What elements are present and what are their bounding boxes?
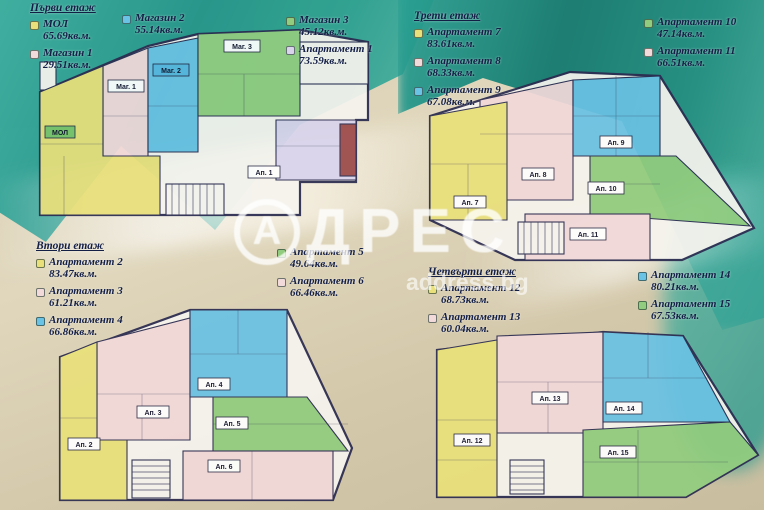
legend-item: Апартамент 13 60.04кв.м.	[428, 312, 520, 335]
legend-item: Апартамент 10 47.14кв.м.	[644, 17, 736, 40]
unit-label: Апартамент 11	[657, 46, 736, 58]
unit-chip: Ап. 15	[600, 446, 636, 458]
unit-label: Апартамент 14	[651, 270, 730, 282]
unit-area: 65.69кв.м.	[43, 31, 91, 43]
unit-chip: Ап. 2	[68, 438, 100, 450]
unit-chip: Маг. 3	[224, 40, 260, 52]
unit-label: Апартамент 5	[290, 247, 364, 259]
unit-area: 61.21кв.м.	[49, 298, 123, 310]
svg-text:Ап. 6: Ап. 6	[215, 464, 232, 471]
unit-color-bullet	[286, 17, 295, 26]
brochure-page: МОЛ Маг. 1 Маг. 2 Маг. 3 Ап. 1 Ап. 7 Ап.…	[0, 0, 764, 510]
unit-area: 83.61кв.м.	[427, 39, 501, 51]
legend-item: МОЛ 65.69кв.м.	[30, 19, 96, 42]
unit-shape-mag-1	[103, 48, 148, 156]
svg-text:Маг. 2: Маг. 2	[161, 68, 181, 75]
unit-area: 68.73кв.м.	[441, 295, 520, 307]
floor-title: Първи етаж	[30, 2, 96, 14]
stairwell	[166, 184, 224, 215]
unit-chip: Маг. 1	[108, 80, 144, 92]
svg-text:Ап. 9: Ап. 9	[607, 140, 624, 147]
svg-text:Ап. 8: Ап. 8	[529, 172, 546, 179]
unit-area: 67.08кв.м.	[427, 97, 501, 109]
unit-label: Апартамент 13	[441, 312, 520, 324]
unit-shape-ap-6	[183, 451, 333, 500]
unit-shape-ap-12	[437, 340, 497, 497]
unit-label: Магазин 1	[43, 48, 92, 60]
unit-label: Апартамент 1	[299, 44, 373, 56]
svg-text:Ап. 5: Ап. 5	[223, 421, 240, 428]
unit-chip: Ап. 1	[248, 166, 280, 178]
stairwell	[510, 460, 544, 494]
unit-area: 45.12кв.м.	[299, 27, 348, 39]
unit-shape-dark	[340, 124, 356, 176]
unit-area: 67.53кв.м.	[651, 311, 730, 323]
unit-label: Апартамент 2	[49, 257, 123, 269]
unit-chip: Ап. 5	[216, 417, 248, 429]
legend-floor-1-col-b: Магазин 2 55.14кв.м.	[122, 13, 184, 42]
unit-label: Апартамент 12	[441, 283, 520, 295]
unit-area: 66.51кв.м.	[657, 58, 736, 70]
svg-text:Ап. 7: Ап. 7	[461, 200, 478, 207]
unit-chip: Ап. 14	[606, 402, 642, 414]
svg-text:Ап. 4: Ап. 4	[205, 382, 222, 389]
legend-item: Апартамент 4 66.86кв.м.	[36, 315, 123, 338]
svg-text:Ап. 1: Ап. 1	[255, 170, 272, 177]
legend-item: Апартамент 8 68.33кв.м.	[414, 56, 501, 79]
unit-label: Апартамент 15	[651, 299, 730, 311]
legend-item: Апартамент 3 61.21кв.м.	[36, 286, 123, 309]
floor-title: Четвърти етаж	[428, 266, 520, 278]
unit-color-bullet	[30, 21, 39, 30]
unit-color-bullet	[638, 301, 647, 310]
legend-item: Апартамент 12 68.73кв.м.	[428, 283, 520, 306]
unit-color-bullet	[36, 288, 45, 297]
svg-text:Ап. 12: Ап. 12	[462, 438, 483, 445]
unit-color-bullet	[36, 259, 45, 268]
legend-item: Апартамент 9 67.08кв.м.	[414, 85, 501, 108]
unit-label: Магазин 2	[135, 13, 184, 25]
unit-label: Апартамент 8	[427, 56, 501, 68]
unit-chip: Ап. 10	[588, 182, 624, 194]
unit-area: 47.14кв.м.	[657, 29, 736, 41]
legend-floor-3-col-b: Апартамент 10 47.14кв.м. Апартамент 11 6…	[644, 17, 736, 75]
unit-color-bullet	[638, 272, 647, 281]
floor-title: Трети етаж	[414, 10, 501, 22]
unit-color-bullet	[428, 285, 437, 294]
unit-area: 55.14кв.м.	[135, 25, 184, 37]
unit-label: Апартамент 7	[427, 27, 501, 39]
unit-label: Апартамент 10	[657, 17, 736, 29]
legend-item: Апартамент 14 80.21кв.м.	[638, 270, 730, 293]
legend-floor-4-col-b: Апартамент 14 80.21кв.м. Апартамент 15 6…	[638, 270, 730, 328]
legend-item: Апартамент 11 66.51кв.м.	[644, 46, 736, 69]
unit-color-bullet	[414, 58, 423, 67]
unit-area: 80.21кв.м.	[651, 282, 730, 294]
unit-chip: Маг. 2	[153, 64, 189, 76]
svg-text:Ап. 11: Ап. 11	[578, 232, 599, 239]
unit-shape-ap-13	[497, 332, 603, 433]
unit-chip: Ап. 6	[208, 460, 240, 472]
unit-color-bullet	[428, 314, 437, 323]
svg-text:Ап. 2: Ап. 2	[75, 442, 92, 449]
unit-chip: Ап. 9	[600, 136, 632, 148]
unit-label: Апартамент 3	[49, 286, 123, 298]
svg-text:Ап. 13: Ап. 13	[540, 396, 561, 403]
svg-text:Ап. 14: Ап. 14	[614, 406, 635, 413]
floor-plan-fourth: Ап. 12 Ап. 13 Ап. 14 Ап. 15	[428, 330, 764, 506]
unit-chip: МОЛ	[45, 126, 75, 138]
svg-text:Ап. 10: Ап. 10	[596, 186, 617, 193]
unit-shape-ap-15	[583, 422, 758, 497]
unit-color-bullet	[644, 48, 653, 57]
unit-area: 68.33кв.м.	[427, 68, 501, 80]
unit-color-bullet	[277, 278, 286, 287]
unit-color-bullet	[30, 50, 39, 59]
legend-item: Апартамент 5 49.64кв.м.	[277, 247, 364, 270]
legend-floor-2-col-a: Втори етаж Апартамент 2 83.47кв.м. Апарт…	[36, 240, 123, 344]
legend-item: Апартамент 15 67.53кв.м.	[638, 299, 730, 322]
legend-item: Апартамент 1 73.59кв.м.	[286, 44, 373, 67]
legend-floor-4-col-a: Четвърти етаж Апартамент 12 68.73кв.м. А…	[428, 266, 520, 341]
svg-text:Маг. 3: Маг. 3	[232, 44, 252, 51]
legend-item: Магазин 1 29.51кв.м.	[30, 48, 96, 71]
legend-item: Апартамент 7 83.61кв.м.	[414, 27, 501, 50]
legend-item: Магазин 2 55.14кв.м.	[122, 13, 184, 36]
unit-color-bullet	[286, 46, 295, 55]
unit-chip: Ап. 7	[454, 196, 486, 208]
legend-floor-2-col-b: Апартамент 5 49.64кв.м. Апартамент 6 66.…	[277, 247, 364, 305]
legend-floor-3-col-a: Трети етаж Апартамент 7 83.61кв.м. Апарт…	[414, 10, 501, 114]
unit-chip: Ап. 4	[198, 378, 230, 390]
unit-color-bullet	[277, 249, 286, 258]
unit-area: 83.47кв.м.	[49, 269, 123, 281]
unit-label: Магазин 3	[299, 15, 348, 27]
unit-color-bullet	[36, 317, 45, 326]
unit-area: 73.59кв.м.	[299, 56, 373, 68]
unit-label: Апартамент 6	[290, 276, 364, 288]
unit-area: 66.86кв.м.	[49, 327, 123, 339]
unit-color-bullet	[644, 19, 653, 28]
svg-text:МОЛ: МОЛ	[52, 130, 68, 137]
stairwell	[518, 222, 564, 254]
unit-chip: Ап. 3	[137, 406, 169, 418]
unit-area: 66.46кв.м.	[290, 288, 364, 300]
legend-item: Апартамент 2 83.47кв.м.	[36, 257, 123, 280]
legend-floor-1-col-c: Магазин 3 45.12кв.м. Апартамент 1 73.59к…	[286, 15, 373, 73]
floor-title: Втори етаж	[36, 240, 123, 252]
svg-text:Маг. 1: Маг. 1	[116, 84, 136, 91]
unit-chip: Ап. 11	[570, 228, 606, 240]
unit-label: МОЛ	[43, 19, 91, 31]
unit-chip: Ап. 8	[522, 168, 554, 180]
unit-color-bullet	[414, 87, 423, 96]
unit-chip: Ап. 13	[532, 392, 568, 404]
legend-item: Магазин 3 45.12кв.м.	[286, 15, 373, 38]
unit-area: 60.04кв.м.	[441, 324, 520, 336]
svg-text:Ап. 3: Ап. 3	[144, 410, 161, 417]
unit-shape-mag-2	[148, 38, 198, 152]
unit-chip: Ап. 12	[454, 434, 490, 446]
unit-color-bullet	[414, 29, 423, 38]
legend-floor-1-col-a: Първи етаж МОЛ 65.69кв.м. Магазин 1 29.5…	[30, 2, 96, 77]
legend-item: Апартамент 6 66.46кв.м.	[277, 276, 364, 299]
svg-text:Ап. 15: Ап. 15	[608, 450, 629, 457]
unit-area: 29.51кв.м.	[43, 60, 92, 72]
unit-color-bullet	[122, 15, 131, 24]
unit-area: 49.64кв.м.	[290, 259, 364, 271]
